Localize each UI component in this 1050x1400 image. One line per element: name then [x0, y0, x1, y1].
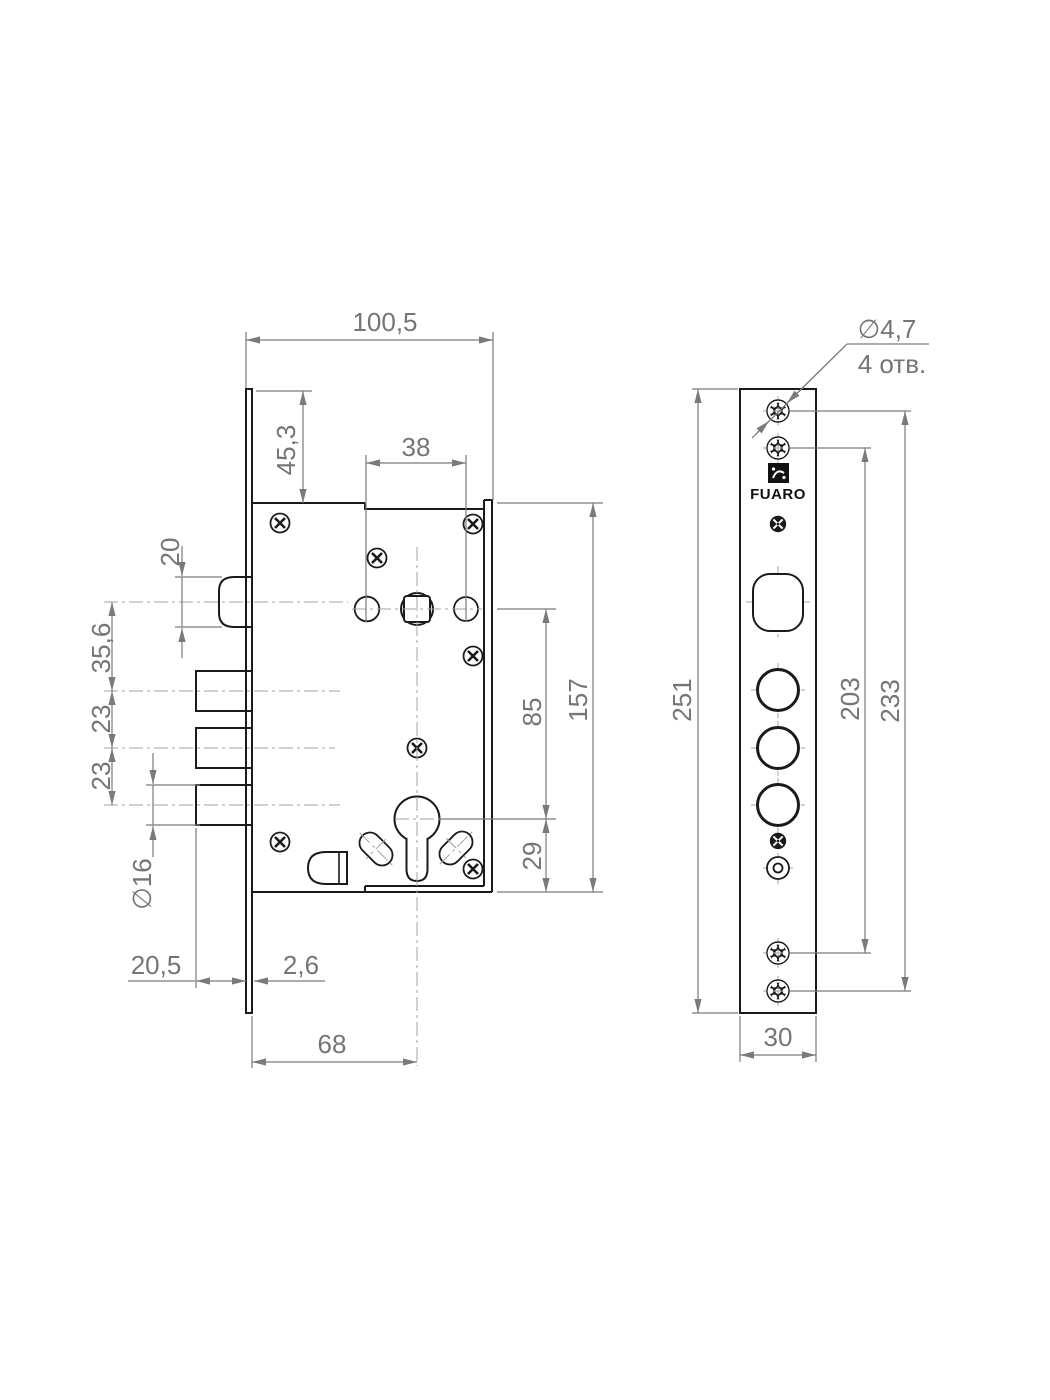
dim-cylinder-to-bottom: 29 — [517, 819, 547, 892]
svg-text:4 отв.: 4 отв. — [858, 349, 927, 379]
dim-plate-length: 251 — [667, 389, 738, 1013]
svg-text:203: 203 — [835, 677, 865, 720]
svg-text:23: 23 — [86, 762, 116, 791]
svg-text:251: 251 — [667, 678, 697, 721]
stopper — [308, 852, 347, 884]
svg-text:2,6: 2,6 — [283, 950, 319, 980]
dim-latch-height: 20 — [155, 538, 222, 658]
plate-screw-bottom — [770, 833, 786, 849]
dim-bolt-diameter: ∅16 — [127, 753, 200, 910]
case-screw-4 — [464, 647, 483, 666]
svg-text:85: 85 — [517, 698, 547, 727]
svg-text:23: 23 — [86, 705, 116, 734]
svg-text:30: 30 — [764, 1022, 793, 1052]
dim-bolt-pitch-2: 23 — [86, 748, 116, 805]
svg-text:∅16: ∅16 — [127, 858, 157, 910]
drawing-page: FUARO — [0, 0, 1050, 1400]
case-screw-1 — [271, 514, 290, 533]
svg-text:45,3: 45,3 — [271, 425, 301, 476]
brand-logo — [768, 463, 789, 483]
dim-backset: 68 — [252, 1016, 417, 1068]
dim-latch-to-bolt: 35,6 — [86, 602, 116, 691]
plate-screw-top — [770, 516, 786, 532]
case-screw-7 — [464, 860, 483, 879]
case-screw-6 — [271, 833, 290, 852]
svg-text:100,5: 100,5 — [352, 307, 417, 337]
svg-text:233: 233 — [875, 679, 905, 722]
dim-bolt-pitch-1: 23 — [86, 691, 116, 748]
svg-text:68: 68 — [318, 1029, 347, 1059]
front-view: FUARO — [740, 389, 816, 1013]
dim-plate-thickness: 2,6 — [254, 950, 325, 981]
svg-text:∅4,7: ∅4,7 — [858, 314, 917, 344]
svg-text:20,5: 20,5 — [131, 950, 182, 980]
svg-text:38: 38 — [402, 432, 431, 462]
technical-drawing: FUARO — [0, 0, 1050, 1400]
dim-plate-width: 30 — [740, 1016, 816, 1062]
case-screw-3 — [368, 549, 387, 568]
dim-body-height: 157 — [497, 503, 603, 892]
svg-text:35,6: 35,6 — [86, 623, 116, 674]
dim-plate-top-offset: 45,3 — [256, 391, 312, 503]
mounting-slot-left — [350, 823, 402, 875]
svg-text:29: 29 — [517, 842, 547, 871]
brand-text: FUARO — [750, 486, 806, 503]
svg-text:20: 20 — [155, 538, 185, 567]
svg-text:157: 157 — [563, 678, 593, 721]
dim-hub-to-cylinder: 85 — [440, 609, 556, 819]
